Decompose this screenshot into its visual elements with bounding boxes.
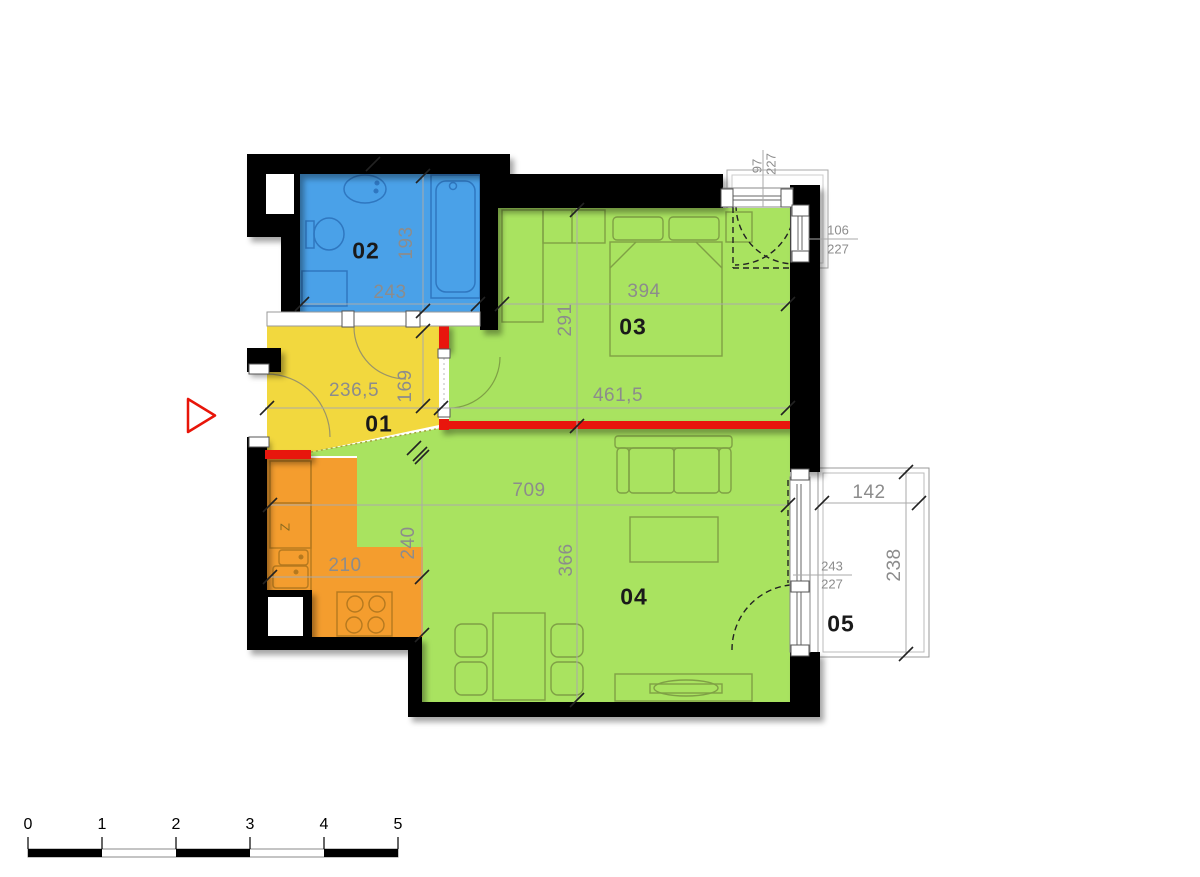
floor-plan-page: 01 02 03 04 05 243 193 394 291 461,5 236… [0,0,1200,877]
entrance-arrow-icon [188,399,215,432]
window-jamb [791,581,809,592]
scale-label-1: 1 [98,816,107,834]
dim-balcony-depth: 238 [884,548,906,581]
window-jamb [721,189,733,207]
dim-bedroom-width-top: 394 [627,281,660,303]
balcony-window [790,477,810,652]
room-label-02: 02 [352,238,380,265]
door-jamb [406,311,420,327]
dim-balcony-width: 142 [852,482,885,504]
scale-label-3: 3 [246,816,255,834]
window-jamb [791,645,809,656]
door-jamb [438,349,450,358]
dim-hall-width: 236,5 [329,380,379,402]
dim-hall-depth: 169 [395,369,417,402]
door-jamb [342,311,354,327]
window-jamb [791,469,809,480]
wall-niche [268,597,303,636]
top-window-width: 97 [750,159,765,173]
room-label-04: 04 [620,584,648,611]
door-jamb [249,437,269,447]
room-label-05: 05 [827,611,855,638]
side-window-width: 106 [827,223,849,238]
dim-kitchen-depth: 240 [398,526,420,559]
balcony-door-width: 243 [821,559,843,574]
dim-living-width: 709 [512,480,545,502]
room-fills [267,174,790,702]
wall-niche [266,174,294,214]
top-window-height: 227 [764,153,779,175]
scale-label-5: 5 [394,816,403,834]
scale-label-0: 0 [24,816,33,834]
dim-bedroom-width: 461,5 [593,385,643,407]
balcony-door-height: 227 [821,577,843,592]
dim-bedroom-depth: 291 [555,303,577,336]
kitchen-counter-mark: Z [278,523,293,531]
dim-bathroom-depth: 193 [396,226,418,259]
bathroom-hall-wall [267,312,480,326]
floor-plan-drawing [0,0,1200,877]
scale-bar [28,837,398,857]
door-jamb [249,364,269,374]
scale-label-2: 2 [172,816,181,834]
window-jamb [792,251,809,262]
dim-bathroom-width: 243 [373,282,406,304]
scale-label-4: 4 [320,816,329,834]
side-window-height: 227 [827,242,849,257]
window-jamb [781,189,793,207]
dim-kitchen-width: 210 [328,555,361,577]
room-label-03: 03 [619,314,647,341]
dim-living-depth: 366 [556,543,578,576]
room-label-01: 01 [365,411,393,438]
window-jamb [792,205,809,216]
